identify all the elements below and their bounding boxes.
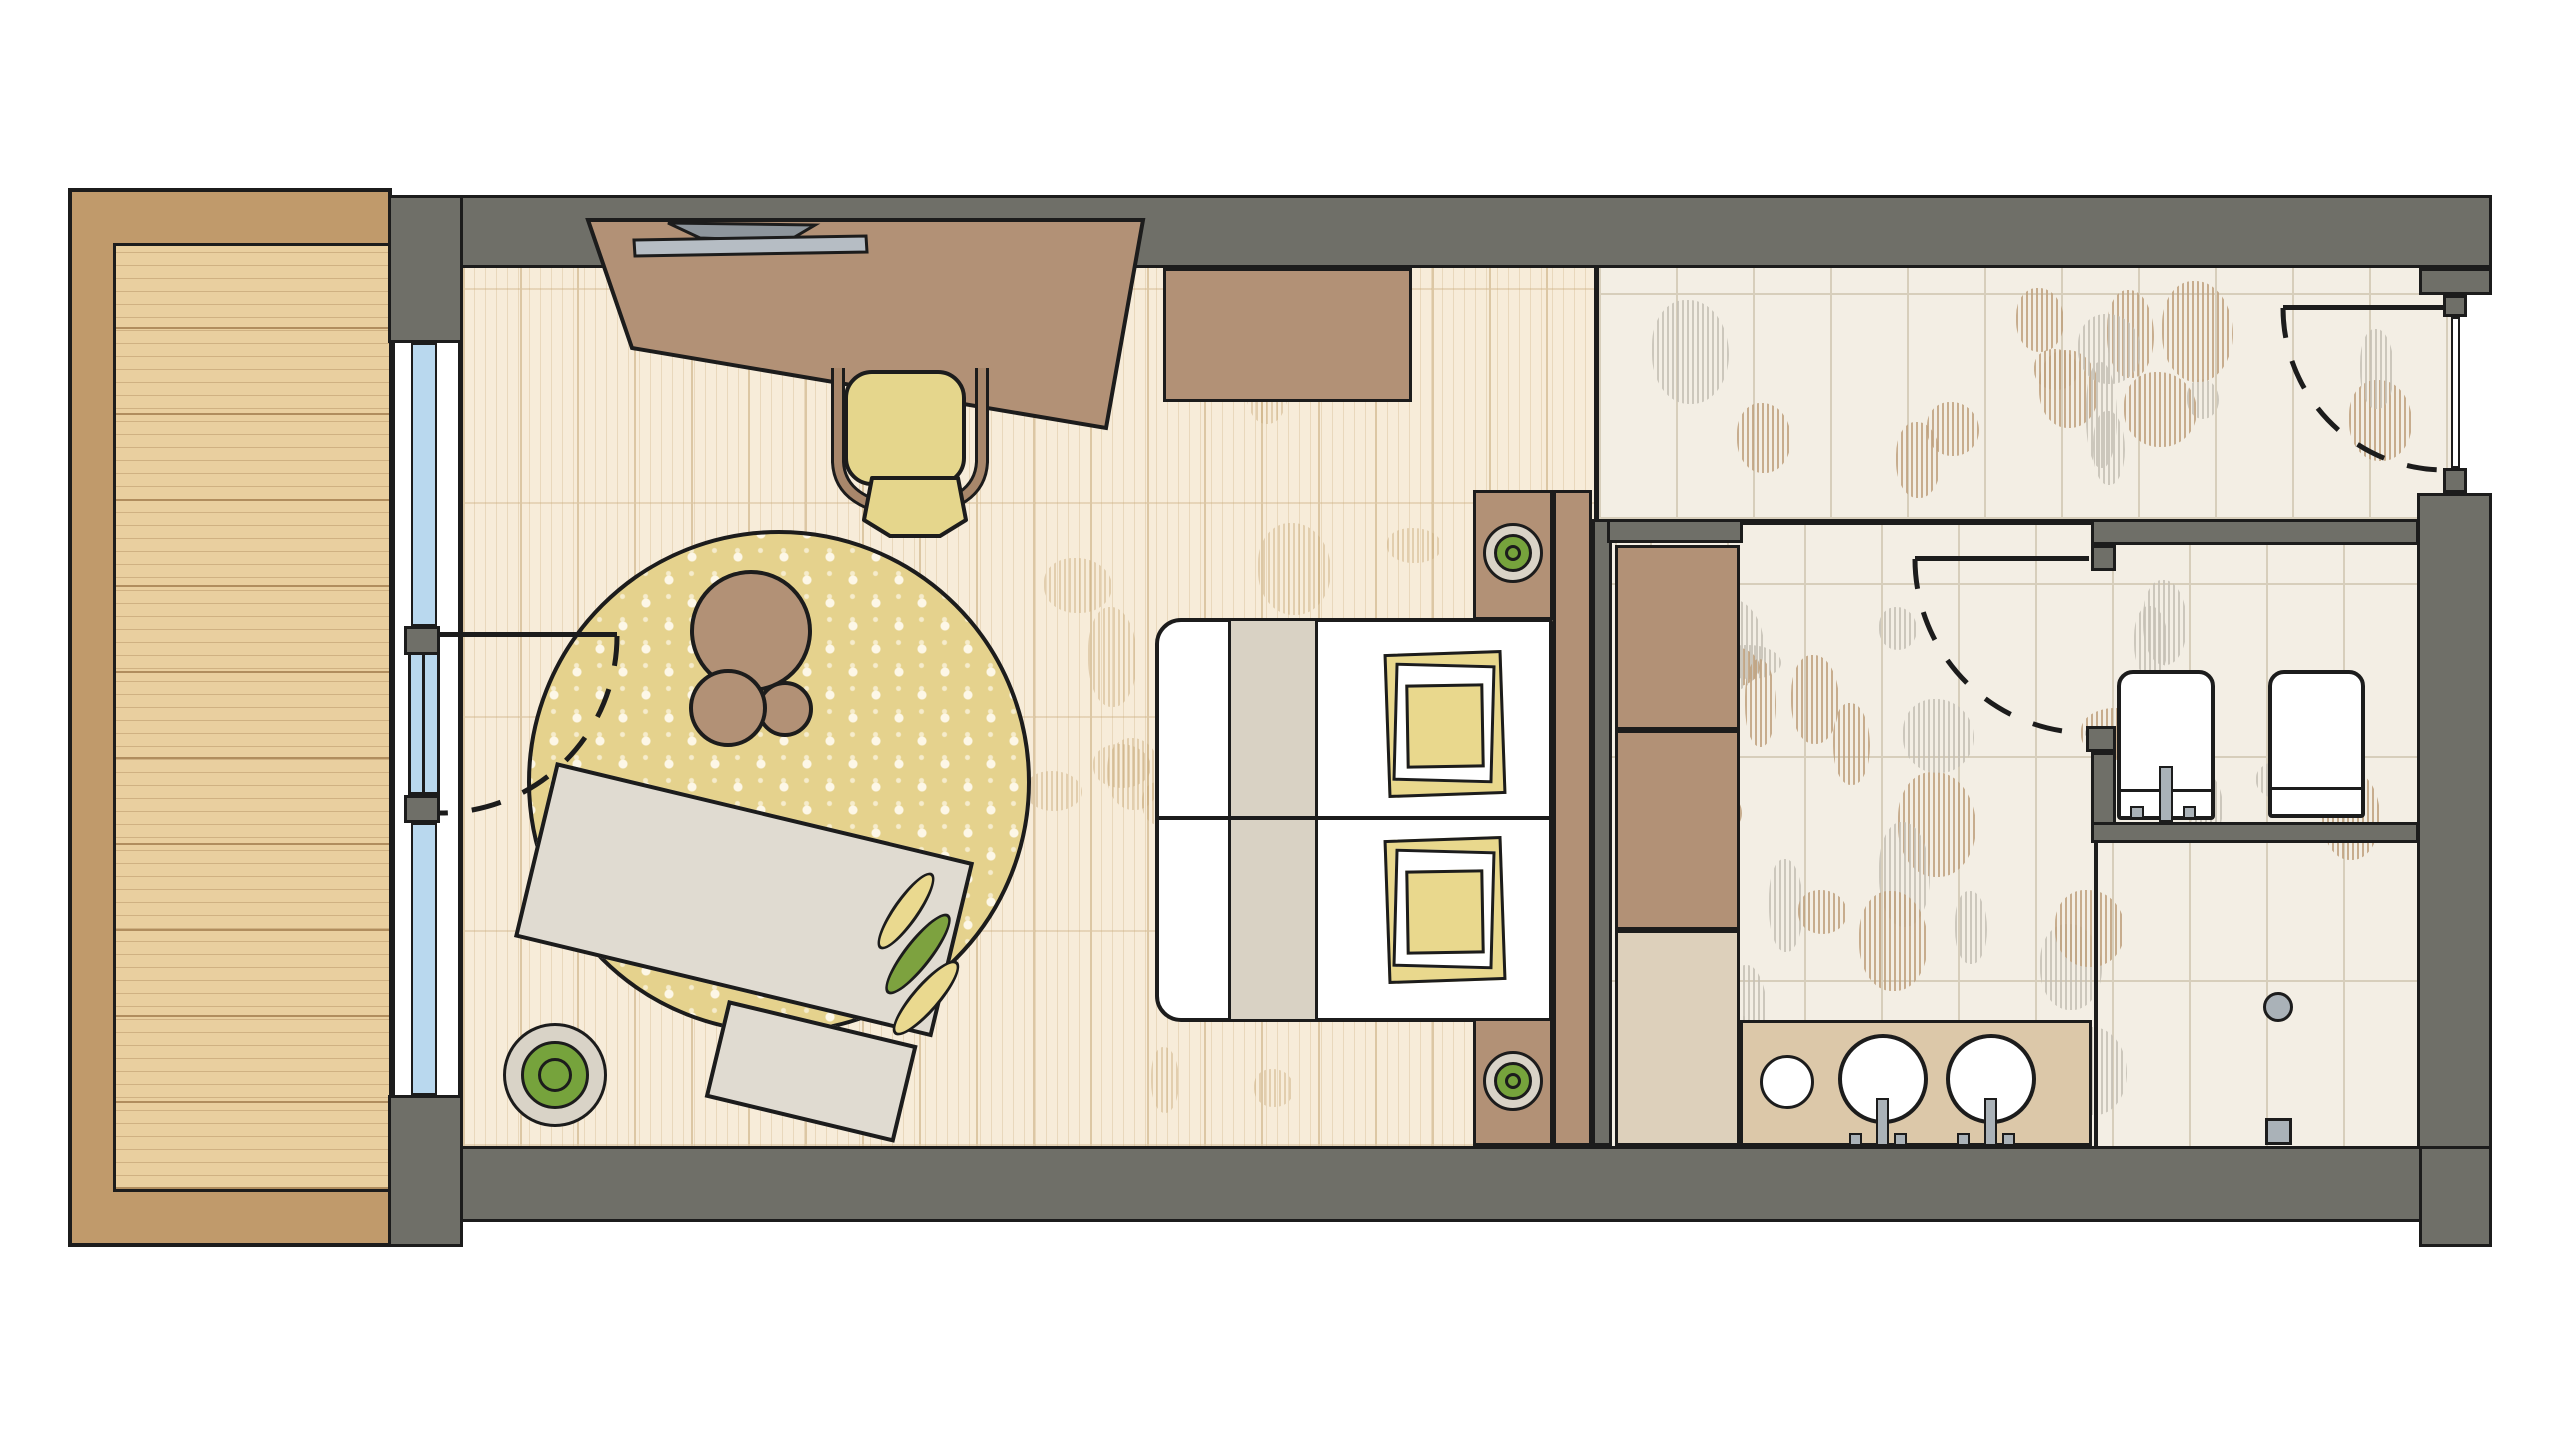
wc-door-swing-arc xyxy=(1915,559,2089,733)
balcony-door-swing-arc xyxy=(440,636,617,813)
door-swing-arcs xyxy=(0,0,2560,1440)
entry-door-swing-arc xyxy=(2283,308,2445,470)
floor-plan-canvas xyxy=(0,0,2560,1440)
